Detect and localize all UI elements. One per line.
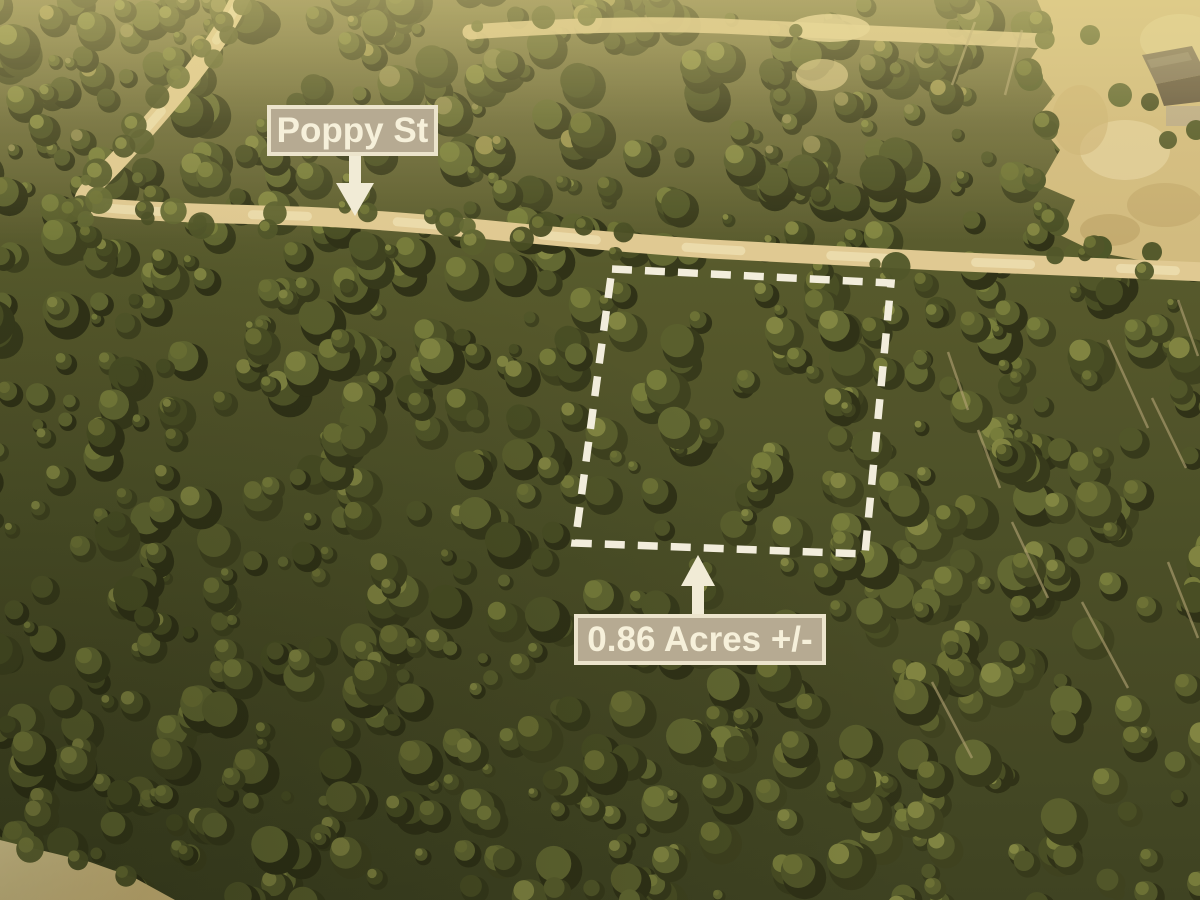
aerial-scene: [0, 0, 1200, 900]
aerial-property-photo: Poppy St 0.86 Acres +/-: [0, 0, 1200, 900]
street-sign-text: Poppy St: [277, 113, 429, 148]
corner-shade: [0, 0, 1200, 900]
street-sign-label: Poppy St: [267, 105, 438, 156]
acreage-label: 0.86 Acres +/-: [574, 614, 826, 665]
acreage-text: 0.86 Acres +/-: [587, 622, 812, 657]
